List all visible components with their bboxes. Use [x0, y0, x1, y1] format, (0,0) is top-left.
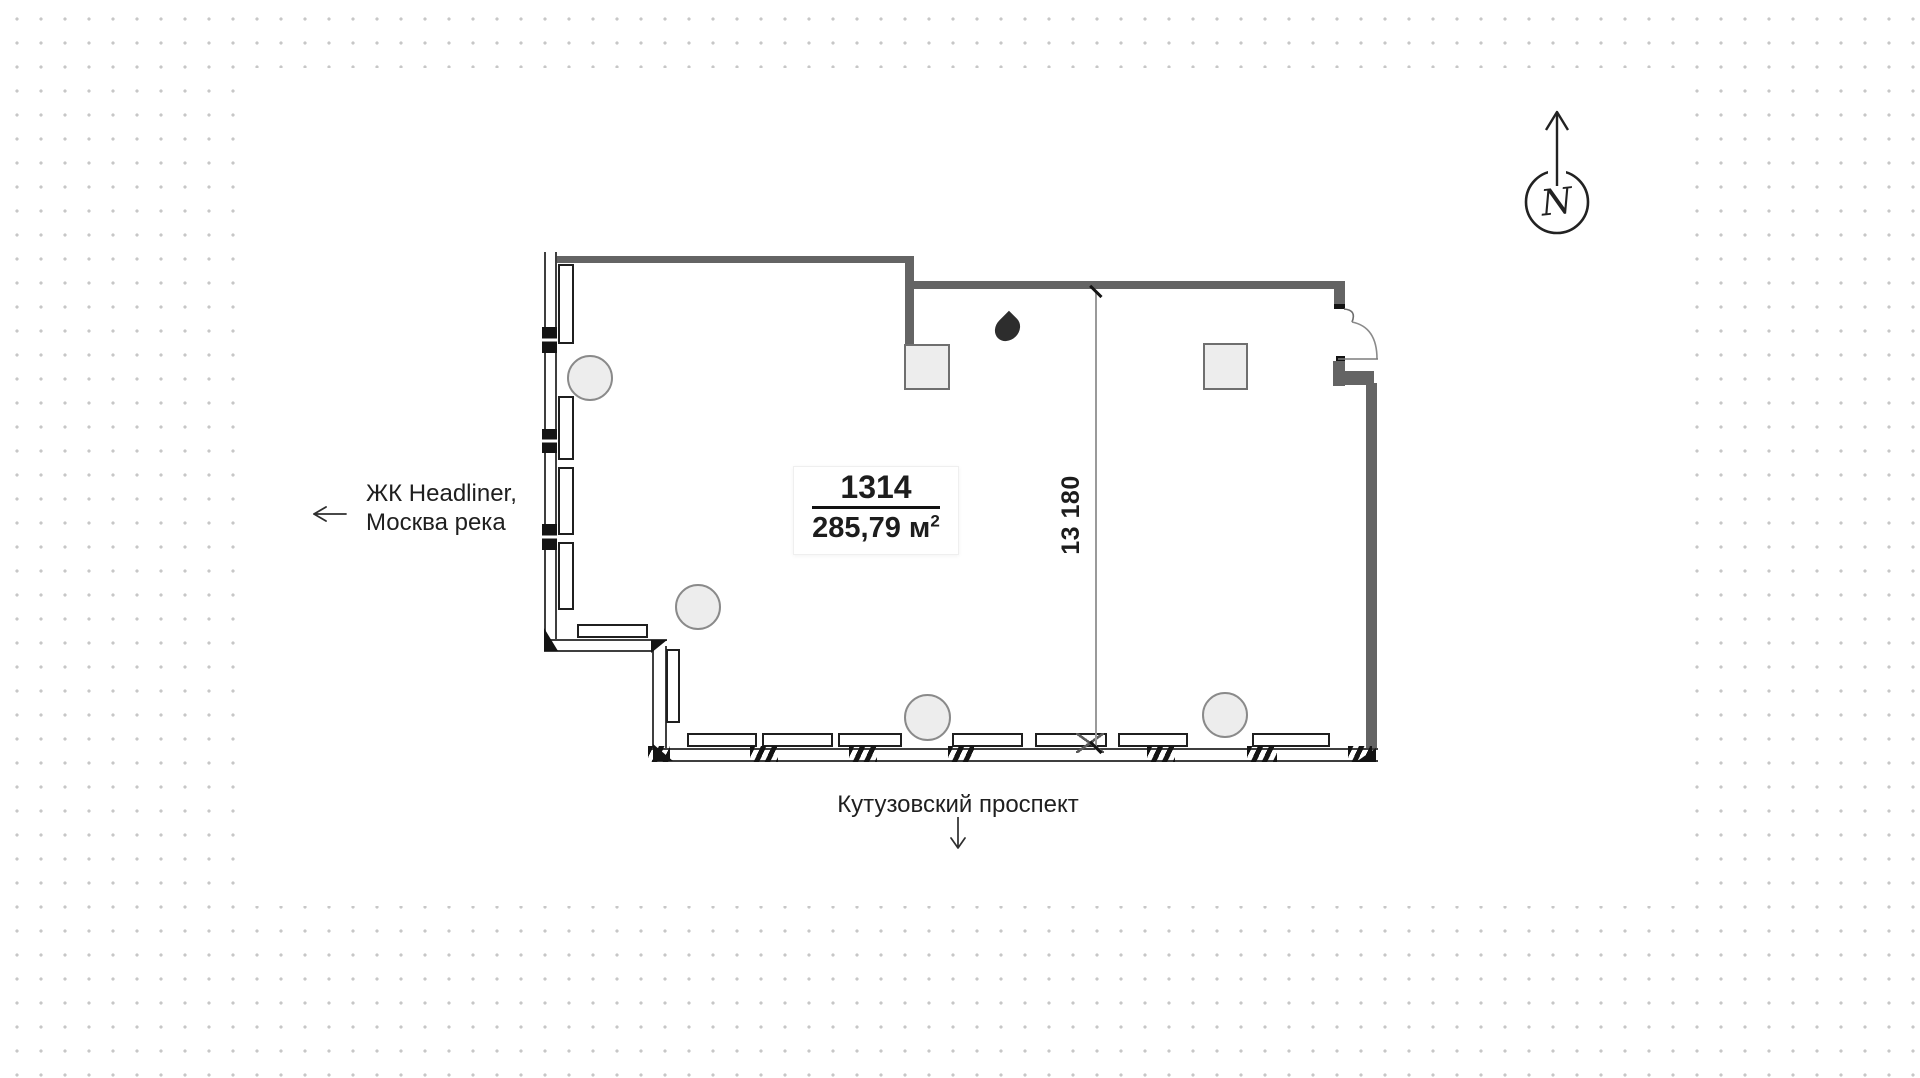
- west-label-line1: ЖК Headliner,: [366, 479, 517, 508]
- casement-mark: [1147, 746, 1175, 762]
- square-column: [1203, 343, 1248, 390]
- casement-mark: [849, 746, 877, 762]
- floor-plan: 13 180 1314 285,79 м2: [0, 0, 1920, 1078]
- window-frame: [558, 396, 574, 460]
- window-frame: [558, 467, 574, 535]
- window-frame: [577, 624, 648, 638]
- unit-area: 285,79 м2: [794, 512, 958, 544]
- window-frame: [952, 733, 1023, 747]
- window-frame: [762, 733, 833, 747]
- unit-number: 1314: [794, 470, 958, 504]
- west-direction-label: ЖК Headliner, Москва река: [366, 479, 517, 537]
- window-wall-step-h: [544, 639, 667, 652]
- mullion-mark: [542, 327, 557, 353]
- casement-mark: [1247, 746, 1277, 762]
- mullion-mark: [542, 524, 557, 550]
- compass-n-letter: N: [1538, 180, 1576, 224]
- casement-mark: [750, 746, 778, 762]
- floorplan-page: 13 180 1314 285,79 м2 ЖК Headliner, Моск…: [0, 0, 1920, 1078]
- round-column: [567, 355, 613, 401]
- dimension-line: [1095, 292, 1097, 750]
- unit-area-exponent: 2: [930, 511, 939, 530]
- mullion-mark: [542, 429, 557, 453]
- arrow-down-icon: [948, 817, 968, 851]
- wall-stub-column: [905, 288, 914, 346]
- window-frame: [558, 264, 574, 344]
- wall-right: [1366, 383, 1377, 762]
- casement-mark: [948, 746, 974, 762]
- window-frame: [1118, 733, 1188, 747]
- wall-top-right: [914, 281, 1345, 289]
- wall-top-step: [905, 256, 914, 288]
- round-column: [904, 694, 951, 741]
- window-frame: [1252, 733, 1330, 747]
- south-street-label: Кутузовский проспект: [808, 791, 1108, 819]
- unit-area-unit: м: [909, 512, 930, 544]
- unit-card-divider: [812, 506, 940, 509]
- window-frame: [558, 542, 574, 610]
- square-column: [904, 344, 950, 390]
- west-label-line2: Москва река: [366, 508, 517, 537]
- door-swing-icon: [1338, 306, 1382, 364]
- wall-top-left: [556, 256, 912, 263]
- round-column: [1202, 692, 1248, 738]
- round-column: [675, 584, 721, 630]
- unit-card[interactable]: 1314 285,79 м2: [793, 466, 959, 555]
- unit-area-value: 285,79: [812, 512, 901, 544]
- arrow-left-icon: [310, 504, 350, 524]
- dimension-value: 13 180: [1056, 452, 1086, 578]
- window-frame: [838, 733, 902, 747]
- north-compass-icon: N: [1523, 104, 1591, 236]
- window-wall-step-v: [652, 646, 667, 755]
- window-frame: [666, 649, 680, 723]
- water-drop-icon: [990, 311, 1025, 346]
- window-frame: [687, 733, 757, 747]
